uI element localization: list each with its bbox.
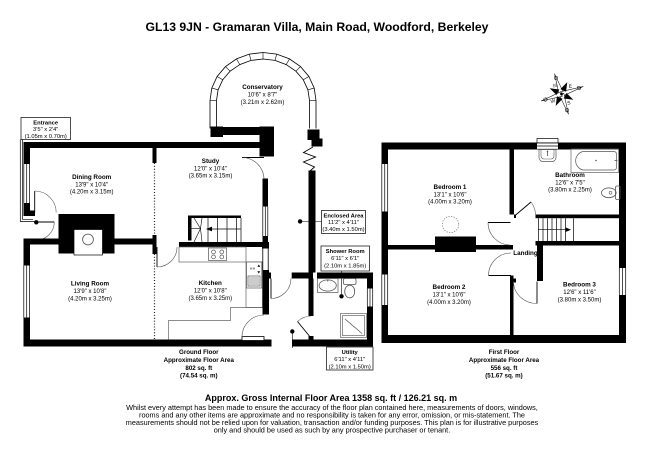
svg-text:(51.67 sq. m): (51.67 sq. m) (485, 373, 523, 380)
svg-text:Enclosed Area: Enclosed Area (323, 213, 364, 219)
svg-text:Approx. Gross Internal Floor A: Approx. Gross Internal Floor Area 1358 s… (205, 393, 457, 403)
svg-text:802 sq. ft: 802 sq. ft (185, 365, 212, 372)
svg-text:(3.21m x 2.62m): (3.21m x 2.62m) (241, 100, 285, 106)
svg-text:Bedroom 2: Bedroom 2 (433, 284, 466, 291)
svg-text:Approximate Floor Area: Approximate Floor Area (164, 357, 235, 364)
svg-text:(3.80m x 3.50m): (3.80m x 3.50m) (558, 298, 602, 304)
svg-text:(3.65m x 3.25m): (3.65m x 3.25m) (188, 296, 232, 302)
svg-text:11'2" x 4'11": 11'2" x 4'11" (328, 220, 359, 226)
svg-text:(4.00m x 3.20m): (4.00m x 3.20m) (428, 200, 472, 206)
svg-text:556 sq. ft: 556 sq. ft (491, 365, 518, 372)
svg-text:Entrance: Entrance (33, 121, 59, 127)
svg-text:3'5" x 2'4": 3'5" x 2'4" (33, 127, 58, 133)
svg-text:Dining Room: Dining Room (72, 174, 112, 181)
svg-text:13'9" x 10'8": 13'9" x 10'8" (74, 289, 107, 295)
svg-text:6'11" x 6'1": 6'11" x 6'1" (331, 256, 359, 262)
svg-text:(3.40m x 1.50m): (3.40m x 1.50m) (322, 227, 364, 233)
svg-text:Ground Floor: Ground Floor (179, 349, 219, 356)
svg-text:12'6" x 11'6": 12'6" x 11'6" (563, 290, 595, 296)
svg-text:6'11" x 4'11": 6'11" x 4'11" (334, 357, 365, 363)
svg-text:Shower Room: Shower Room (326, 249, 365, 255)
svg-text:Approximate Floor Area: Approximate Floor Area (469, 357, 540, 364)
svg-text:First Floor: First Floor (489, 349, 520, 356)
svg-text:W.M: W.M (250, 268, 255, 271)
svg-text:only and should be used as suc: only and should be used as such by any p… (214, 425, 451, 434)
svg-text:Conservatory: Conservatory (242, 84, 283, 91)
svg-text:(4.20m x 3.25m): (4.20m x 3.25m) (68, 297, 112, 303)
svg-text:13'9" x 10'4": 13'9" x 10'4" (75, 182, 108, 188)
svg-text:(3.65m x 3.15m): (3.65m x 3.15m) (189, 174, 233, 180)
svg-text:10'6" x 8'7": 10'6" x 8'7" (248, 93, 278, 99)
svg-text:Landing: Landing (513, 250, 538, 257)
svg-text:Bedroom 1: Bedroom 1 (434, 184, 467, 191)
svg-text:(2.10m x 1.50m): (2.10m x 1.50m) (329, 364, 371, 370)
svg-text:(2.10m x 1.85m): (2.10m x 1.85m) (324, 264, 366, 270)
svg-text:GL13 9JN - Gramaran Villa, Mai: GL13 9JN - Gramaran Villa, Main Road, Wo… (146, 20, 489, 34)
svg-text:Bathroom: Bathroom (555, 172, 585, 179)
svg-text:(74.54 sq. m): (74.54 sq. m) (180, 373, 218, 380)
svg-text:13'1" x 10'6": 13'1" x 10'6" (433, 293, 466, 299)
svg-text:(4.20m x 3.15m): (4.20m x 3.15m) (70, 190, 114, 196)
svg-text:(3.80m x 2.25m): (3.80m x 2.25m) (548, 188, 592, 194)
svg-text:(4.00m x 3.20m): (4.00m x 3.20m) (427, 300, 471, 306)
svg-text:Kitchen: Kitchen (199, 280, 222, 287)
svg-text:Bedroom 3: Bedroom 3 (563, 282, 596, 289)
svg-text:Living Room: Living Room (71, 281, 110, 288)
svg-text:12'0" x 10'4": 12'0" x 10'4" (194, 166, 227, 172)
svg-text:12'0" x 10'8": 12'0" x 10'8" (194, 289, 227, 295)
svg-text:13'1" x 10'6": 13'1" x 10'6" (434, 192, 467, 198)
svg-text:Study: Study (202, 158, 220, 165)
svg-text:Utility: Utility (342, 350, 359, 356)
svg-text:(1.05m x 0.70m): (1.05m x 0.70m) (25, 134, 67, 140)
svg-text:12'6" x 7'5": 12'6" x 7'5" (555, 180, 585, 186)
